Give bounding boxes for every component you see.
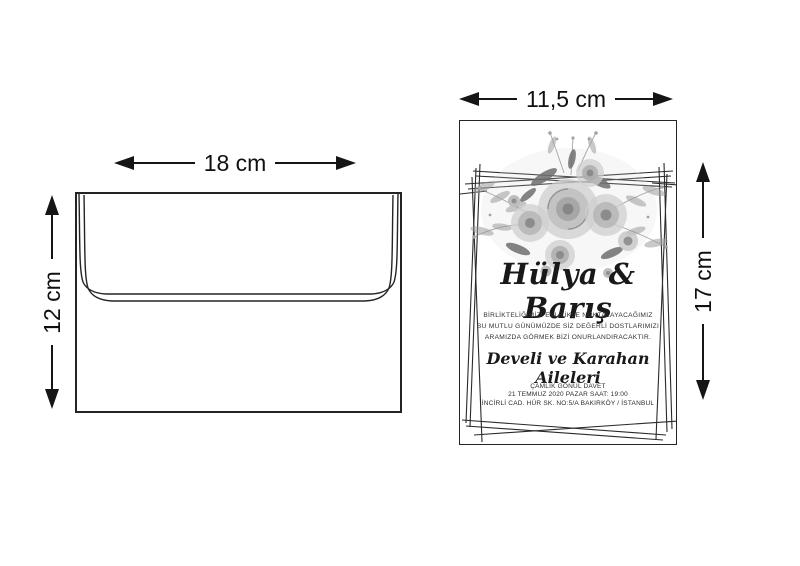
envelope-height-label: 12 cm [39,271,66,334]
arrow-down-icon [45,389,59,409]
arrow-right-icon [336,156,356,170]
invitation-message: BİRLİKTELİĞİMİZİ EVLİLİKLE NOKTALAYACAĞI… [460,310,676,343]
card-height-dimension: 17 cm [689,162,717,400]
envelope-outline [75,192,402,413]
dimension-line [479,98,517,100]
arrow-right-icon [653,92,673,106]
card-width-dimension: 11,5 cm [459,85,673,113]
dimension-line [134,162,195,164]
invitation-card: Hülya & Barış BİRLİKTELİĞİMİZİ EVLİLİKLE… [459,120,677,445]
message-line: BİRLİKTELİĞİMİZİ EVLİLİKLE NOKTALAYACAĞI… [460,310,676,321]
envelope-flap-line-inner [84,195,393,301]
arrow-left-icon [114,156,134,170]
arrow-up-icon [45,195,59,215]
message-line: BU MUTLU GÜNÜMÜZDE SİZ DEĞERLİ DOSTLARIM… [460,321,676,332]
envelope-flap-line-outer [79,194,398,294]
dimension-line [51,345,53,389]
families-line: Develi ve Karahan Aileleri [460,349,676,387]
arrow-down-icon [696,380,710,400]
venue-line: ÇAMLIK GÖNÜL DAVET [460,383,676,391]
arrow-up-icon [696,162,710,182]
rotated-label-wrapper: 17 cm [672,238,735,324]
envelope-body [76,193,401,412]
dimension-line [275,162,336,164]
envelope-width-dimension: 18 cm [114,149,356,177]
rotated-label-wrapper: 12 cm [21,259,84,345]
dimension-line [702,324,704,380]
arrow-left-icon [459,92,479,106]
card-width-label: 11,5 cm [517,86,615,113]
dimension-line [702,182,704,238]
product-dimension-diagram: 18 cm 12 cm 11,5 cm 17 cm [0,0,800,566]
dimension-line [615,98,653,100]
dimension-line [51,215,53,259]
card-height-label: 17 cm [690,250,717,313]
event-details: ÇAMLIK GÖNÜL DAVET 21 TEMMUZ 2020 PAZAR … [460,383,676,408]
envelope-height-dimension: 12 cm [38,195,66,409]
address-line: İNCİRLİ CAD. HÜR SK. NO:5/A BAKIRKÖY / İ… [460,400,676,408]
envelope-width-label: 18 cm [195,150,276,177]
message-line: ARAMIZDA GÖRMEK BİZİ ONURLANDIRACAKTIR. [460,332,676,343]
datetime-line: 21 TEMMUZ 2020 PAZAR SAAT: 19:00 [460,391,676,399]
